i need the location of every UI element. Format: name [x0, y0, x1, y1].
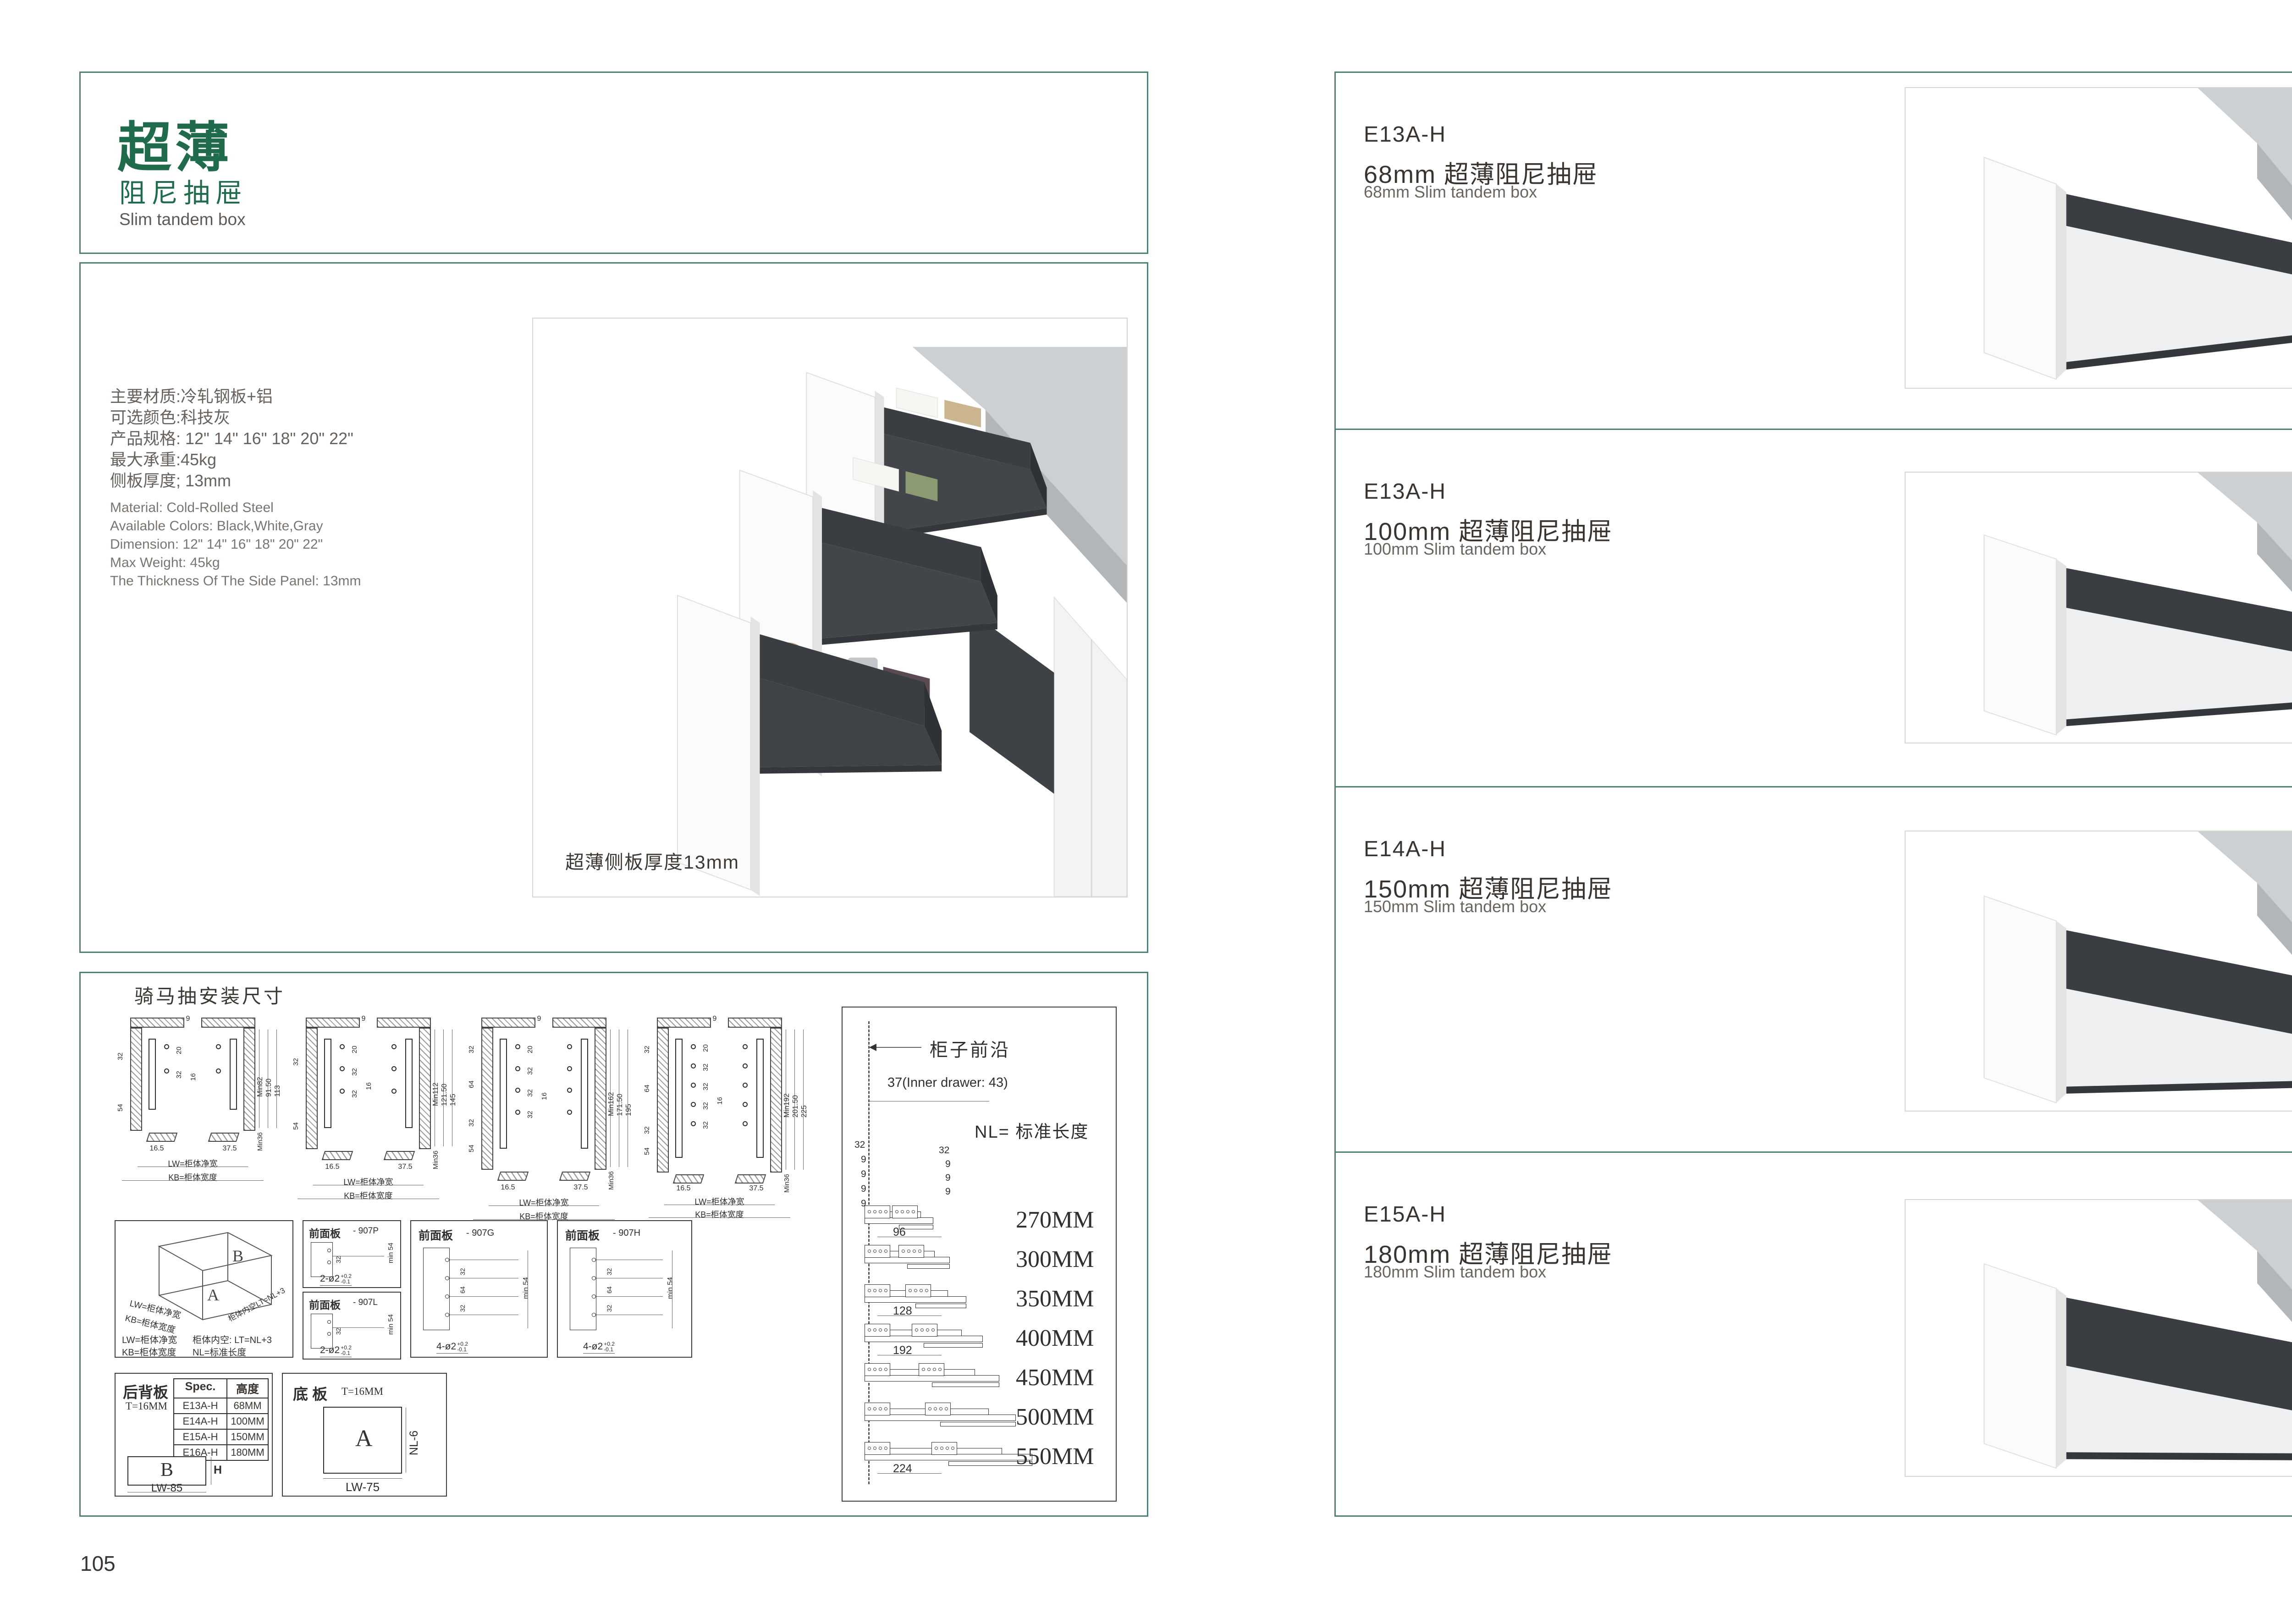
- dim-line: [450, 1260, 518, 1260]
- product-photo-150mm: [1905, 831, 2292, 1112]
- hatch-right-wall: [595, 1028, 606, 1170]
- bracket-hole: [868, 1328, 871, 1332]
- drawer-illustration: [1906, 1200, 2292, 1476]
- bracket-hole: [884, 1210, 887, 1213]
- bracket-hole: [879, 1447, 882, 1450]
- bracket-hole: [915, 1328, 918, 1332]
- tol-dn: -0.1: [457, 1347, 468, 1352]
- dim-label: 32: [939, 1145, 949, 1156]
- dim-label: 37.5: [562, 1184, 600, 1192]
- height-col-header: 高度: [227, 1379, 268, 1398]
- hatch-bottom-right: [559, 1172, 590, 1181]
- dim-label: 9: [705, 1015, 725, 1023]
- product-photo-68mm: [1905, 87, 2292, 389]
- height-cell: 150MM: [227, 1430, 268, 1444]
- cabinet-wireframe: [116, 1221, 294, 1329]
- dim-label-rotated: 20: [175, 1047, 183, 1055]
- mount-hole: [327, 1332, 331, 1336]
- hatch-right-wall: [419, 1028, 431, 1149]
- spec-table-row: E14A-H100MM: [174, 1414, 268, 1430]
- dim-label-rotated: min 54: [667, 1277, 675, 1299]
- iso-legend: KB=柜体宽度: [122, 1345, 176, 1358]
- panel-code: - 907L: [353, 1298, 378, 1308]
- back-panel-box: 后背板T=16MMSpec.高度E13A-H68MME14A-H100MME15…: [115, 1373, 273, 1497]
- slide-row: 400MM192: [843, 1323, 1116, 1362]
- page-subtitle-cn: 阻尼抽屉: [119, 171, 248, 210]
- slide-row: 550MM224: [843, 1441, 1116, 1481]
- catalog-spread: 超薄 阻尼抽屉 Slim tandem box 主要材质:冷轧钢板+铝可选颜色:…: [0, 0, 2292, 1624]
- bracket-hole: [884, 1447, 887, 1450]
- slide-extension: [915, 1304, 966, 1308]
- bracket-hole: [868, 1447, 871, 1450]
- mount-hole: [391, 1044, 397, 1049]
- dim-label: LW=柜体净宽: [306, 1176, 431, 1188]
- bracket-hole: [873, 1289, 876, 1292]
- panel-letter-b: B: [160, 1459, 173, 1481]
- bracket-hole: [926, 1328, 929, 1332]
- dim-label: LW=柜体净宽: [130, 1157, 255, 1169]
- slide-rail: [865, 1415, 1016, 1421]
- drill-qty: 2-ø2: [320, 1273, 340, 1284]
- spec-line-en: Max Weight: 45kg: [110, 554, 361, 572]
- dim-label: LW-85: [127, 1482, 206, 1495]
- drill-note: 4-ø2+0.2-0.1: [583, 1341, 615, 1354]
- bracket-hole: [920, 1289, 923, 1292]
- dim-label-rotated: 64: [468, 1080, 475, 1088]
- iso-legend: NL=标准长度: [193, 1345, 246, 1358]
- length-label: 300MM: [1016, 1246, 1093, 1273]
- dim-label: 192: [893, 1344, 912, 1357]
- dim-label: KB=柜体宽度: [657, 1208, 782, 1220]
- section-1-model: E13A-H: [1364, 122, 1446, 147]
- slide-bracket: [925, 1403, 951, 1415]
- hatch-left-wall: [657, 1028, 669, 1173]
- spec-cell: E13A-H: [174, 1398, 227, 1413]
- dim-label-rotated: 64: [459, 1286, 466, 1294]
- bracket-hole: [945, 1407, 948, 1410]
- dim-label-rotated: 145: [449, 1094, 457, 1106]
- bracket-hole: [879, 1210, 882, 1213]
- dim-label: LW=柜体净宽: [657, 1195, 782, 1207]
- dim-label-rotated: 32: [175, 1071, 183, 1079]
- dim-line: [452, 1029, 452, 1146]
- specs-chinese: 主要材质:冷轧钢板+铝可选颜色:科技灰产品规格: 12" 14" 16" 18"…: [110, 386, 353, 491]
- page-number-left: 105: [80, 1551, 116, 1576]
- dim-label-rotated: 32: [292, 1058, 300, 1066]
- mount-hole: [567, 1088, 572, 1093]
- dim-label-rotated: 32: [351, 1068, 358, 1076]
- dim-line: [323, 1478, 402, 1479]
- hatch-bottom-left: [322, 1151, 353, 1160]
- dim-line: [596, 1278, 663, 1278]
- back-panel-thickness: T=16MM: [126, 1400, 167, 1412]
- slide-rail: [865, 1336, 983, 1342]
- drawer-illustration: [1906, 831, 2292, 1111]
- bracket-hole: [868, 1250, 871, 1253]
- drill-qty: 2-ø2: [320, 1345, 340, 1355]
- dim-label-rotated: min 54: [522, 1277, 530, 1299]
- spec-line-cn: 最大承重:45kg: [110, 449, 353, 470]
- bracket-hole: [873, 1250, 876, 1253]
- panel-name: 前面板: [565, 1227, 600, 1243]
- dim-line: [450, 1315, 518, 1315]
- panel-outline: [311, 1314, 333, 1349]
- dim-label-rotated: Min36: [783, 1174, 791, 1193]
- slide-bracket: [865, 1206, 890, 1218]
- bracket-hole: [951, 1447, 954, 1450]
- mount-hole: [391, 1066, 397, 1071]
- bottom-panel-thickness: T=16MM: [342, 1386, 383, 1398]
- dim-label: 16.5: [664, 1184, 703, 1193]
- product-photo-100mm: [1905, 472, 2292, 743]
- hatch-left-wall: [481, 1028, 493, 1170]
- hatch-bottom-left: [497, 1172, 529, 1181]
- bracket-hole: [938, 1368, 942, 1371]
- slide-bracket: [865, 1442, 890, 1455]
- bracket-hole: [925, 1289, 928, 1292]
- dim-label: 9: [945, 1159, 951, 1170]
- mount-hole: [515, 1044, 520, 1049]
- section-1-title-en: 68mm Slim tandem box: [1364, 182, 1537, 202]
- section-divider-3: [1334, 1151, 2292, 1153]
- mount-hole: [340, 1066, 345, 1071]
- slide-row: 500MM: [843, 1402, 1116, 1441]
- mount-hole: [592, 1313, 596, 1317]
- drill-note: 4-ø2+0.2-0.1: [436, 1341, 468, 1354]
- slide-extension: [907, 1264, 950, 1269]
- dim-label-rotated: Min112: [432, 1082, 440, 1106]
- slide-row: 300MM: [843, 1244, 1116, 1283]
- spec-line-en: Available Colors: Black,White,Gray: [110, 517, 361, 535]
- dim-label: LW-75: [323, 1480, 402, 1494]
- dim-label: 16.5: [489, 1184, 527, 1192]
- hatch-top-left: [481, 1018, 535, 1028]
- mount-hole: [515, 1110, 520, 1115]
- mount-hole: [743, 1102, 748, 1107]
- photo-caption: 超薄侧板厚度13mm: [565, 847, 739, 874]
- mount-hole: [592, 1294, 596, 1299]
- dim-label-rotated: 32: [526, 1111, 534, 1119]
- bracket-hole: [914, 1289, 917, 1292]
- spec-line-en: Material: Cold-Rolled Steel: [110, 499, 361, 517]
- spec-cell: E14A-H: [174, 1414, 227, 1429]
- section-divider-2: [1334, 786, 2292, 787]
- dim-label: LW=柜体净宽: [481, 1196, 606, 1208]
- dim-label-rotated: 201.50: [792, 1095, 800, 1118]
- mount-hole: [445, 1313, 449, 1317]
- slide-row: 450MM: [843, 1362, 1116, 1402]
- dim-label: 9: [861, 1154, 866, 1165]
- dim-label: 16.5: [138, 1145, 176, 1153]
- cabinet-front-label: 柜子前沿: [930, 1035, 1010, 1062]
- bracket-hole: [884, 1289, 887, 1292]
- dim-label: 224: [893, 1462, 912, 1475]
- length-label: 550MM: [1016, 1443, 1093, 1470]
- mount-hole: [743, 1083, 748, 1088]
- panel-name: 前面板: [309, 1225, 341, 1240]
- mount-hole: [327, 1261, 331, 1264]
- dim-label-rotated: 32: [335, 1256, 342, 1263]
- hatch-top-right: [728, 1018, 782, 1028]
- dim-label-rotated: 20: [351, 1046, 358, 1053]
- dim-label-rotated: 54: [116, 1104, 124, 1112]
- slide-bracket: [865, 1284, 890, 1297]
- dim-line: [596, 1296, 663, 1297]
- bracket-hole: [931, 1328, 935, 1332]
- dim-label: 9: [861, 1184, 866, 1195]
- panel-letter-a: A: [355, 1425, 373, 1452]
- tol-dn: -0.1: [341, 1350, 352, 1356]
- dim-label: 96: [893, 1226, 906, 1239]
- iso-legend: 柜体内空: LT=NL+3: [193, 1332, 272, 1346]
- hatch-right-wall: [243, 1028, 255, 1131]
- bracket-hole: [909, 1289, 912, 1292]
- bracket-hole: [873, 1328, 876, 1332]
- hatch-top-left: [306, 1018, 360, 1028]
- bracket-hole: [879, 1407, 882, 1410]
- back-panel-title: 后背板: [123, 1380, 168, 1402]
- dim-line: [211, 1457, 211, 1485]
- dim-line: [869, 1101, 989, 1101]
- slide-bracket: [898, 1245, 924, 1258]
- dim-label-rotated: 32: [526, 1068, 534, 1075]
- drawer-side-panel-left: [500, 1039, 507, 1149]
- bracket-hole: [912, 1210, 915, 1213]
- hatch-bottom-right: [208, 1133, 239, 1142]
- panel-letter-b: B: [232, 1246, 243, 1266]
- panel-code: - 907G: [466, 1228, 494, 1239]
- dim-label: 16.5: [313, 1163, 352, 1171]
- bracket-hole: [906, 1210, 909, 1213]
- bracket-hole: [879, 1289, 882, 1292]
- front-panel-box-907P: 前面板- 907P32min 542-ø2+0.2-0.1: [303, 1220, 401, 1288]
- bottom-panel-box: 底 板T=16MMANL-6LW-75: [282, 1373, 447, 1497]
- panel-letter-a: A: [207, 1285, 219, 1305]
- mount-hole: [567, 1044, 572, 1049]
- mount-hole: [445, 1258, 449, 1262]
- dim-label-rotated: 20: [702, 1044, 710, 1052]
- mount-hole: [515, 1066, 520, 1071]
- panel-outline: [311, 1242, 333, 1277]
- dim-label-rotated: 32: [606, 1268, 613, 1275]
- drawer-side-panel-left: [149, 1039, 156, 1110]
- dim-line: [596, 1260, 663, 1260]
- panel-name: 前面板: [419, 1227, 453, 1243]
- offset-label: 37(Inner drawer: 43): [887, 1075, 1008, 1090]
- hatch-left-wall: [306, 1028, 318, 1149]
- spec-table-header: Spec.高度: [174, 1379, 268, 1398]
- panel-code: - 907P: [353, 1226, 379, 1236]
- spec-col-header: Spec.: [174, 1379, 227, 1398]
- dim-label-rotated: 32: [702, 1121, 710, 1129]
- spec-line-en: The Thickness Of The Side Panel: 13mm: [110, 572, 361, 590]
- drawer-side-panel-right: [230, 1039, 237, 1110]
- dim-label-rotated: 20: [526, 1046, 534, 1053]
- spec-table-row: E13A-H68MM: [174, 1398, 268, 1414]
- dim-label-rotated: 16: [189, 1073, 197, 1081]
- length-label: 270MM: [1016, 1206, 1093, 1233]
- spec-table-row: E15A-H150MM: [174, 1430, 268, 1445]
- mount-hole: [743, 1063, 748, 1068]
- hatch-left-wall: [130, 1028, 142, 1131]
- dim-label: KB=柜体宽度: [306, 1189, 431, 1201]
- slide-bracket: [865, 1245, 890, 1258]
- slide-row: 350MM128: [843, 1283, 1116, 1323]
- length-label: 400MM: [1016, 1325, 1093, 1352]
- panel-code: - 907H: [613, 1228, 640, 1239]
- dim-label-rotated: 32: [335, 1327, 342, 1335]
- dim-label-rotated: 16: [365, 1082, 373, 1090]
- dim-label-rotated: 113: [274, 1085, 282, 1097]
- drill-note: 2-ø2+0.2-0.1: [320, 1273, 352, 1286]
- mount-hole: [445, 1294, 449, 1299]
- mount-hole: [743, 1044, 748, 1049]
- dim-label-rotated: Min36: [607, 1171, 615, 1190]
- dim-label-rotated: 64: [606, 1286, 613, 1294]
- slide-extension: [924, 1343, 983, 1348]
- bracket-hole: [933, 1368, 936, 1371]
- length-label: 500MM: [1016, 1404, 1093, 1431]
- bracket-hole: [946, 1447, 949, 1450]
- dim-label-rotated: min 54: [387, 1243, 395, 1263]
- mount-hole: [592, 1276, 596, 1280]
- bracket-hole: [940, 1447, 943, 1450]
- spec-line-cn: 侧板厚度; 13mm: [110, 470, 353, 491]
- hatch-top-right: [377, 1018, 431, 1028]
- bracket-hole: [928, 1407, 931, 1410]
- dim-label-rotated: Min192: [783, 1094, 791, 1118]
- tol-dn: -0.1: [341, 1279, 352, 1284]
- dim-line: [450, 1296, 518, 1297]
- dim-line: [406, 1408, 406, 1473]
- bracket-hole: [873, 1407, 876, 1410]
- dim-label-rotated: 32: [643, 1126, 651, 1134]
- dim-label: 37.5: [737, 1184, 776, 1193]
- iso-legend: LW=柜体净宽: [122, 1332, 177, 1346]
- mount-hole: [391, 1089, 397, 1094]
- mount-hole: [515, 1088, 520, 1093]
- dim-line: [803, 1029, 804, 1170]
- dim-label: 9: [529, 1015, 549, 1023]
- slide-bracket: [931, 1442, 957, 1455]
- bottom-panel-title: 底 板: [293, 1382, 327, 1404]
- product-photo-main: 超薄侧板厚度13mm: [532, 318, 1128, 897]
- dim-label-rotated: 171.50: [616, 1094, 624, 1116]
- spec-line-cn: 主要材质:冷轧钢板+铝: [110, 386, 353, 407]
- nl-label: NL= 标准长度: [975, 1118, 1089, 1143]
- mount-hole: [164, 1044, 169, 1049]
- slide-extension: [932, 1382, 999, 1387]
- dim-label-rotated: 121.50: [441, 1084, 449, 1106]
- dim-line: [450, 1278, 518, 1278]
- slide-rail: [865, 1375, 999, 1382]
- dim-label-rotated: 32: [468, 1046, 475, 1053]
- length-label: 450MM: [1016, 1364, 1093, 1391]
- mount-hole: [340, 1089, 345, 1094]
- drill-note: 2-ø2+0.2-0.1: [320, 1345, 352, 1357]
- section-2-model: E13A-H: [1364, 479, 1446, 504]
- mount-hole: [164, 1068, 169, 1073]
- bracket-hole: [913, 1250, 916, 1253]
- mount-hole: [743, 1121, 748, 1126]
- bracket-hole: [868, 1289, 871, 1292]
- dim-label-rotated: 32: [702, 1063, 710, 1071]
- front-panel-box-907H: 前面板- 907H326432min 544-ø2+0.2-0.1: [557, 1220, 692, 1358]
- drawer-side-panel-right: [756, 1039, 764, 1158]
- mount-hole: [691, 1083, 696, 1088]
- mount-hole: [327, 1320, 331, 1324]
- drill-qty: 4-ø2: [583, 1341, 603, 1352]
- dim-label: 9: [178, 1015, 198, 1023]
- dim-label-rotated: Min36: [432, 1151, 440, 1169]
- install-title: 骑马抽安装尺寸: [134, 981, 285, 1009]
- drill-tolerance: +0.2-0.1: [341, 1273, 352, 1284]
- dim-label-rotated: 16: [716, 1097, 724, 1105]
- dim-label-rotated: Min162: [607, 1092, 616, 1116]
- slide-row: 270MM96: [843, 1205, 1116, 1244]
- bracket-hole: [939, 1407, 942, 1410]
- bracket-hole: [927, 1368, 931, 1371]
- arrow-line: [871, 1047, 921, 1048]
- drill-tolerance: +0.2-0.1: [604, 1341, 615, 1352]
- drill-qty: 4-ø2: [436, 1341, 456, 1352]
- bracket-hole: [868, 1210, 871, 1213]
- dim-label: 32: [854, 1140, 865, 1151]
- dim-label-rotated: 32: [643, 1046, 651, 1053]
- dim-line: [528, 1250, 528, 1328]
- spec-cell: E15A-H: [174, 1430, 227, 1444]
- kitchen-drawers-illustration: [533, 319, 1127, 897]
- slide-rail: [865, 1257, 950, 1263]
- dim-label-rotated: Min36: [256, 1132, 264, 1151]
- install-drawing-4: 920323232321632643254Min192201.50225Min3…: [641, 1018, 811, 1222]
- install-drawing-1: 92032163254Min8291.50113Min3616.537.5LW=…: [115, 1018, 285, 1180]
- hatch-bottom-left: [673, 1174, 704, 1184]
- arrow-head: [869, 1044, 876, 1051]
- spec-line-cn: 产品规格: 12" 14" 16" 18" 20" 22": [110, 428, 353, 449]
- dim-label: 128: [893, 1305, 912, 1318]
- mount-hole: [691, 1044, 696, 1049]
- cabinet-iso-box: BALW=柜体净宽KB=柜体宽度柜体内空LT=NL+3LW=柜体净宽柜体内空: …: [115, 1220, 293, 1358]
- dim-label: 9: [945, 1186, 951, 1197]
- section-3-title-en: 150mm Slim tandem box: [1364, 897, 1546, 916]
- mount-hole: [327, 1249, 331, 1252]
- spec-line-en: Dimension: 12" 14" 16" 18" 20" 22": [110, 535, 361, 554]
- spec-table: Spec.高度E13A-H68MME14A-H100MME15A-H150MME…: [173, 1378, 269, 1461]
- dim-label-rotated: 54: [643, 1147, 651, 1155]
- product-photo-180mm: [1905, 1199, 2292, 1477]
- bracket-hole: [884, 1328, 887, 1332]
- drill-tolerance: +0.2-0.1: [341, 1345, 352, 1356]
- dim-label-rotated: 32: [116, 1052, 124, 1060]
- bracket-hole: [868, 1407, 871, 1410]
- install-drawing-3: 9203232321632643254Min162171.50195Min361…: [466, 1018, 636, 1219]
- slide-rail: [865, 1296, 966, 1303]
- bracket-hole: [879, 1328, 882, 1332]
- height-cell: 180MM: [227, 1445, 268, 1460]
- mount-hole: [216, 1068, 221, 1073]
- dim-line: [596, 1315, 663, 1315]
- bracket-hole: [879, 1368, 882, 1371]
- slide-rail: [865, 1454, 1032, 1460]
- drawer-illustration: [1906, 88, 2292, 388]
- dim-label-rotated: min 54: [387, 1314, 395, 1335]
- mount-hole: [691, 1102, 696, 1107]
- dim-label-rotated: 225: [800, 1105, 809, 1118]
- dim-label: 37.5: [386, 1163, 424, 1171]
- slide-bracket: [865, 1363, 890, 1376]
- bracket-hole: [902, 1250, 905, 1253]
